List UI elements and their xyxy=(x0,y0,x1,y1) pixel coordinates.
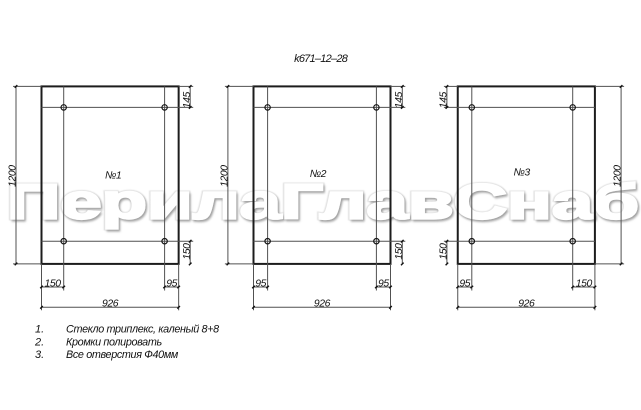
svg-text:926: 926 xyxy=(102,299,119,310)
svg-text:ПерилаГлавСнаб: ПерилаГлавСнаб xyxy=(7,175,639,230)
svg-text:№2: №2 xyxy=(310,168,327,180)
svg-text:150: 150 xyxy=(439,243,450,260)
svg-text:№3: №3 xyxy=(513,167,530,179)
svg-text:926: 926 xyxy=(518,299,535,310)
svg-text:Кромки полировать: Кромки полировать xyxy=(66,336,162,348)
svg-text:95: 95 xyxy=(378,278,389,289)
svg-text:Все отверстия Ф40мм: Все отверстия Ф40мм xyxy=(66,349,179,361)
svg-text:1.: 1. xyxy=(35,324,44,336)
svg-text:1200: 1200 xyxy=(8,165,19,187)
svg-text:926: 926 xyxy=(314,299,331,310)
svg-text:3.: 3. xyxy=(35,349,44,361)
svg-text:Стекло триплекс, каленый 8+8: Стекло триплекс, каленый 8+8 xyxy=(66,324,219,336)
svg-text:№1: №1 xyxy=(105,170,121,182)
svg-text:1200: 1200 xyxy=(220,165,231,187)
svg-text:150: 150 xyxy=(182,243,193,260)
svg-text:150: 150 xyxy=(576,278,593,289)
svg-text:145: 145 xyxy=(394,92,405,109)
svg-text:k671–12–28: k671–12–28 xyxy=(294,53,349,65)
svg-text:95: 95 xyxy=(166,278,177,289)
svg-text:145: 145 xyxy=(182,92,193,109)
svg-text:145: 145 xyxy=(439,92,450,109)
svg-text:95: 95 xyxy=(459,278,470,289)
svg-text:1200: 1200 xyxy=(613,165,624,187)
svg-text:2.: 2. xyxy=(34,336,44,348)
svg-text:150: 150 xyxy=(45,278,62,289)
svg-text:150: 150 xyxy=(394,243,405,260)
svg-text:95: 95 xyxy=(255,278,266,289)
